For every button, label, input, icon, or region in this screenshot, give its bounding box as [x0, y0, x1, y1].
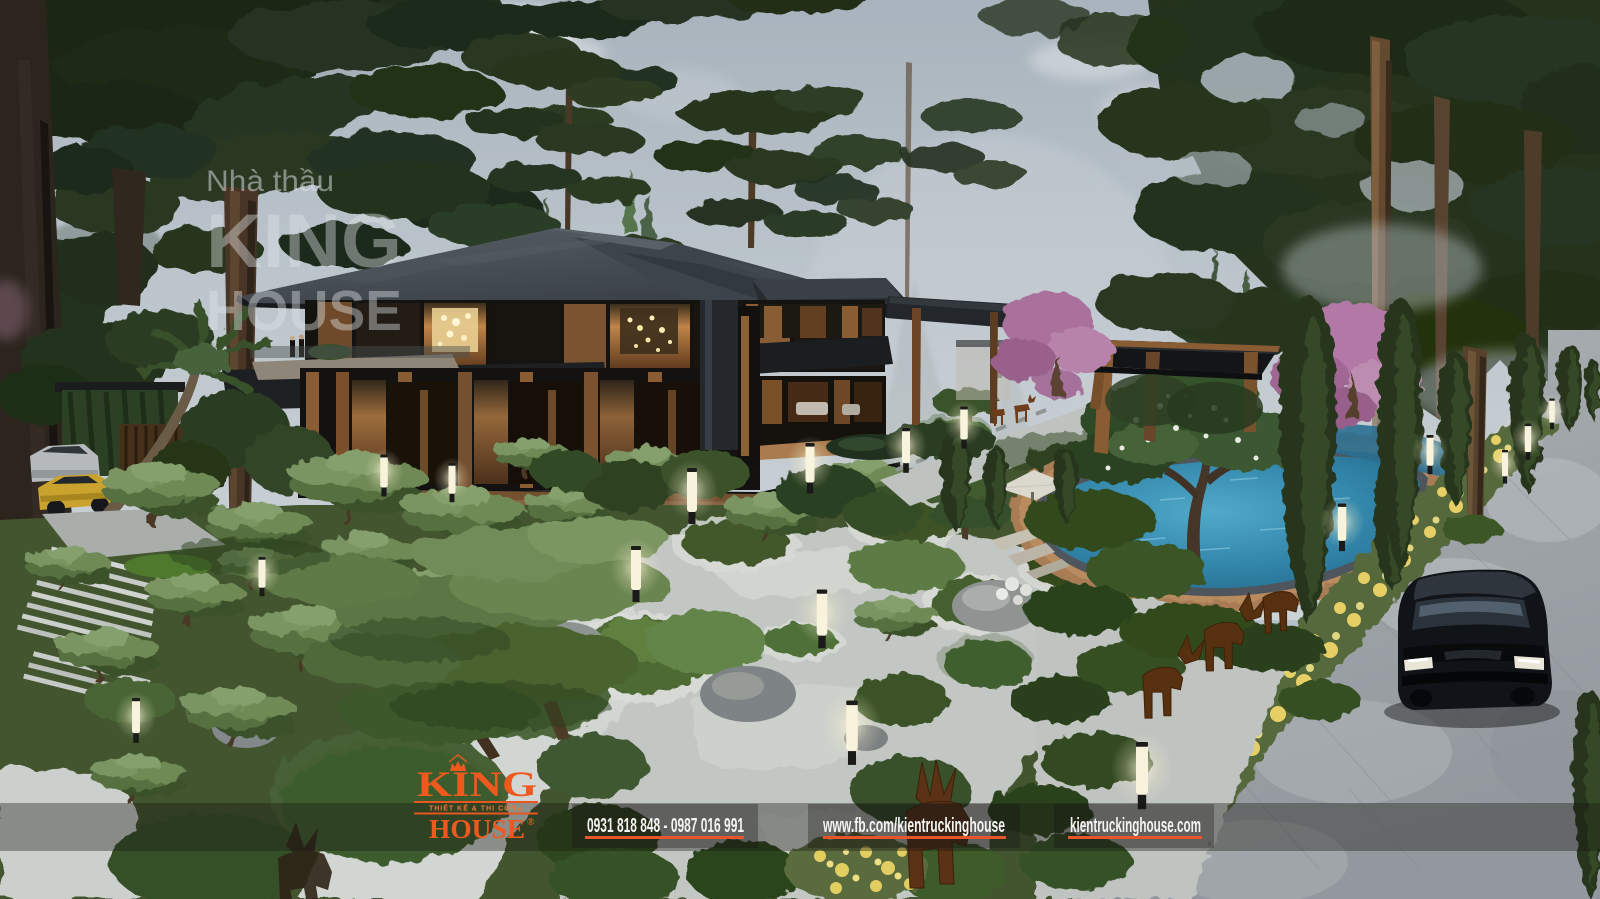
svg-text:KING: KING: [206, 199, 402, 284]
svg-text:www.fb.com/kientruckinghouse: www.fb.com/kientruckinghouse: [822, 815, 1005, 837]
svg-text:HOUSE: HOUSE: [429, 814, 525, 844]
svg-text:KING: KING: [417, 764, 537, 804]
svg-text:HOUSE: HOUSE: [206, 279, 402, 343]
svg-text:kientruckinghouse.com: kientruckinghouse.com: [1070, 815, 1201, 837]
svg-text:Nhà thầu: Nhà thầu: [206, 165, 334, 198]
svg-text:®: ®: [527, 817, 535, 828]
svg-text:0931 818 848 - 0987 016 991: 0931 818 848 - 0987 016 991: [587, 815, 744, 837]
